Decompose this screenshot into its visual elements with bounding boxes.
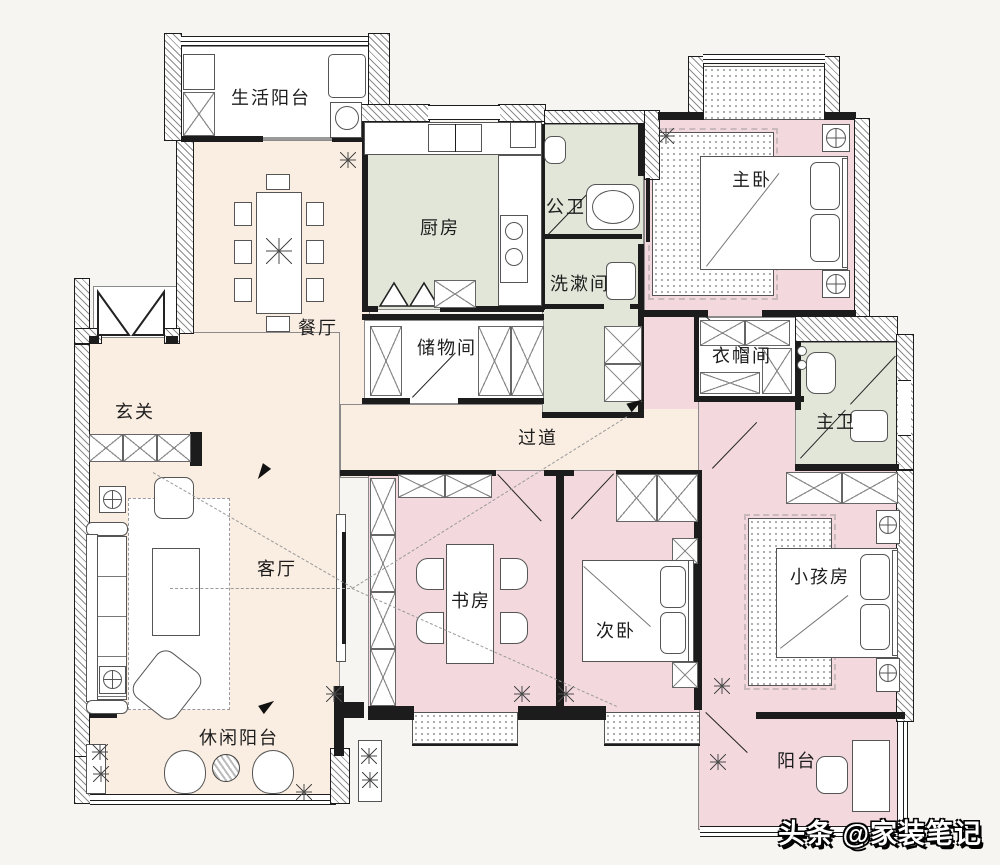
wall-segment [498,104,546,122]
study-chair [500,558,528,590]
room-label-cloakroom: 衣帽间 [712,342,772,368]
room-label-corridor: 过道 [518,424,558,450]
kids-wardrobe [786,472,842,504]
kitchen-folding-door [378,280,440,308]
room-label-washroom: 洗漱间 [550,270,610,296]
wall-segment [688,56,704,120]
study-bookcase [370,649,396,706]
round-table [212,754,240,782]
wall-segment [604,744,700,746]
shoe-cabinet [157,434,191,462]
storage-cabinet [370,326,402,396]
balcony-sink [328,54,366,98]
plant-icon [714,678,730,694]
balcony-cabinet [183,92,215,136]
wall-segment [795,316,898,342]
window-master-bay [703,54,825,64]
wall-segment [74,278,90,330]
room-label-kids-room: 小孩房 [790,563,850,589]
window-kitchen [428,105,500,120]
plant-icon [710,754,726,770]
wall-segment [164,33,182,141]
storage-cabinet [511,326,544,396]
faucet-knob [797,346,807,356]
wall-segment [556,470,564,710]
wall-segment [694,396,804,402]
room-label-dining: 餐厅 [298,314,338,340]
wall-segment [762,310,856,317]
plant-icon [93,766,109,782]
window-master-bath [898,380,911,436]
lamp-icon [826,128,846,148]
plant-icon [340,152,356,168]
plant-icon [558,686,574,702]
room-label-service-balcony: 生活阳台 [231,84,311,110]
study-bookcase [370,592,396,649]
room-label-study: 书房 [451,587,491,613]
pillow [660,612,686,654]
dining-chair [234,278,252,302]
pillow [810,214,840,262]
fridge [434,280,476,308]
dining-chair [266,316,290,332]
plant-icon [296,784,312,800]
wall-segment [824,56,840,120]
wall-segment [334,702,364,718]
wall-segment [362,398,410,404]
wall-segment [824,112,856,120]
laundry-basin [183,54,215,90]
watermark: 头条 @家装笔记 [778,812,982,851]
wall-segment [544,110,646,124]
plant-icon [92,744,108,760]
washing-machine-drum [335,106,359,130]
wall-segment [518,706,606,720]
lounge-chair [252,750,294,794]
lounge-chair [164,750,206,794]
wall-segment [638,124,644,176]
room-label-master-bath: 主卫 [816,408,856,434]
wall-segment [330,748,350,804]
bay-window-second-bedroom [604,712,700,744]
plant-icon [361,748,377,764]
bay-window-master [702,66,826,120]
wall-segment [542,412,644,418]
wall-segment [644,110,660,180]
wall-segment [368,706,414,720]
floor-plan: 生活阳台 餐厅 厨房 公卫 洗漱间 主卧 储物间 衣帽间 主卫 玄关 过道 客厅… [0,0,1000,865]
bathtub-basin [592,190,634,224]
pillow [810,162,840,210]
lamp-icon [826,274,846,294]
room-label-storage: 储物间 [417,334,477,360]
wall-segment [854,118,870,320]
sliding-door-service-balcony [263,137,332,140]
toilet [544,136,566,164]
dining-chair [306,202,324,226]
room-label-second-bedroom: 次卧 [596,617,636,643]
storage-cabinet [478,326,511,396]
wall-segment [176,140,194,334]
kitchen-sink-divider [455,124,456,152]
window-balcony-right [897,722,908,826]
balcony-chair [816,756,848,794]
plant-icon [362,772,378,788]
floor-master-hall [644,317,698,409]
coffee-table [152,548,200,636]
wall-segment [658,112,704,120]
second-bedroom-wardrobe [657,474,698,522]
sight-line [170,588,350,589]
wall-segment [694,317,699,399]
wall-segment [644,310,708,317]
study-bookcase [370,478,396,535]
cloakroom-cabinet [700,372,760,394]
bed-headboard [842,158,848,268]
entry-double-door [95,288,167,338]
burner [505,248,523,266]
study-shelf [398,474,445,498]
wall-segment [542,304,604,309]
nightstand [672,662,698,688]
centerpiece-plant-icon [266,238,292,264]
dining-chair [306,240,324,264]
wall-segment [368,33,390,109]
wall-segment [181,136,263,142]
kids-wardrobe [842,472,898,504]
bed-headboard [688,560,694,662]
shoe-cabinet [123,434,157,462]
room-label-balcony: 阳台 [777,747,817,773]
bay-window-study [412,712,518,744]
pillow [660,566,686,608]
lamp-icon [103,670,122,689]
burner [505,222,523,240]
wall-segment [364,306,378,312]
room-label-kitchen: 厨房 [420,214,460,240]
sofa-armrest [86,700,128,714]
wall-segment [190,432,202,466]
plant-icon [658,128,674,144]
dining-chair [266,174,290,190]
wall-segment [360,104,430,122]
pillow [860,604,890,650]
study-chair [500,612,528,644]
lamp-icon [103,490,122,509]
wall-segment [756,712,905,719]
room-label-leisure-balcony: 休闲阳台 [199,724,279,750]
master-door-leaf [646,178,650,242]
hall-cabinet [604,326,642,364]
wall-segment [412,744,518,746]
window-service-balcony [181,36,371,46]
lamp-icon [879,516,897,534]
plant-icon [326,686,342,702]
dining-chair [234,202,252,226]
wall-segment [795,464,899,471]
wall-segment [166,336,178,344]
wall-segment [542,234,642,239]
second-bedroom-wardrobe [616,474,657,522]
lamp-icon [879,664,897,682]
kitchen-flue [510,122,536,148]
toilet [806,352,836,394]
balcony-desk [852,740,890,812]
faucet-knob [797,360,807,370]
study-shelf [445,474,492,498]
pillow [860,554,890,600]
study-chair [416,558,444,590]
bed-headboard [892,550,898,656]
wall-segment [362,314,544,320]
wall-segment [458,398,544,404]
room-label-master-bedroom: 主卧 [732,166,772,192]
room-label-public-bath: 公卫 [546,193,586,219]
room-label-entry: 玄关 [115,398,155,424]
room-label-living: 客厅 [257,555,297,581]
plant-icon [514,686,530,702]
dining-chair [234,240,252,264]
washroom-sink [606,262,636,300]
dining-chair [306,278,324,302]
shoe-cabinet [89,434,123,462]
